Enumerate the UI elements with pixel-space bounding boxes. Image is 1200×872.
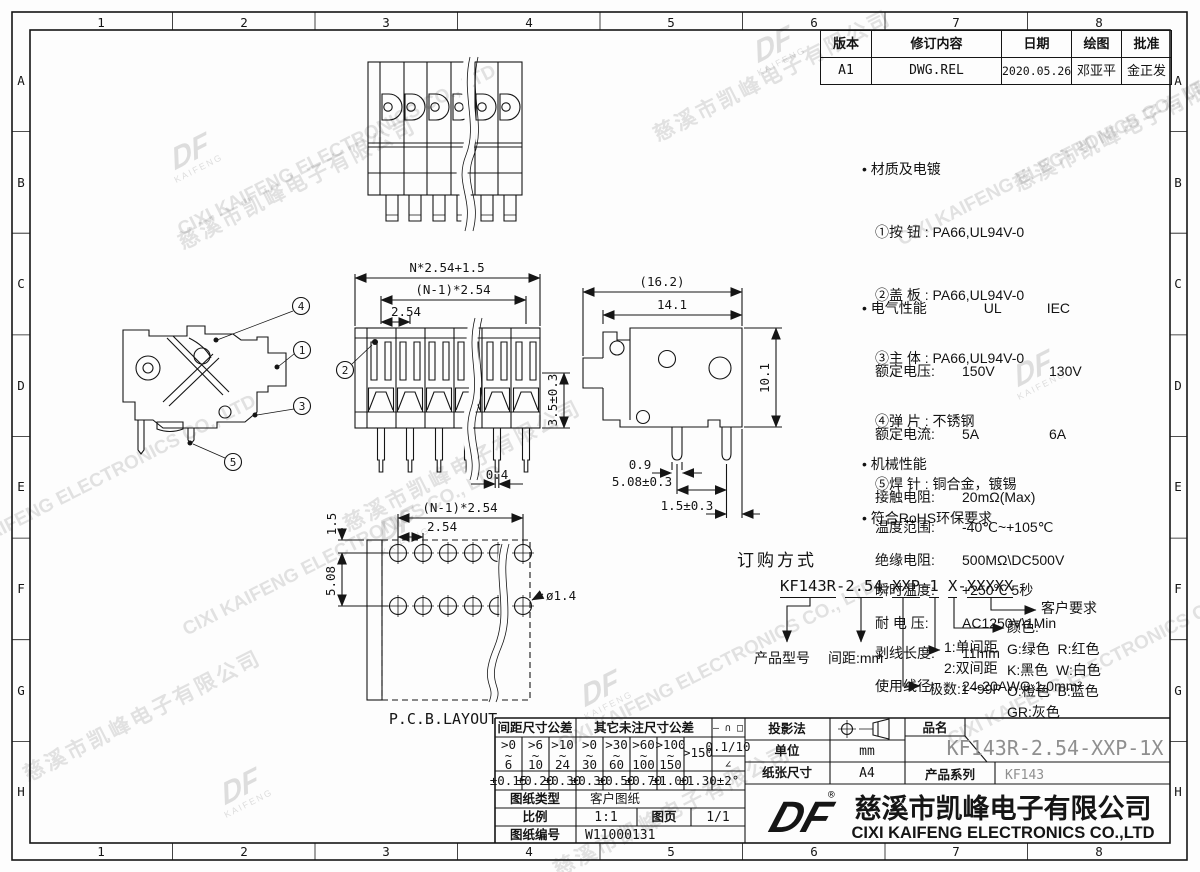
dim-pin-pitch: 5.08±0.3 (612, 474, 672, 489)
spec-rohs: • 符合RoHS环保要求 (862, 508, 1167, 529)
series-label: 产品系列 (925, 767, 975, 782)
rev-header: 日期 (1001, 31, 1071, 57)
svg-text:6: 6 (810, 844, 818, 859)
top-view-drawing (340, 55, 560, 250)
ordering-colors: O:橙色 B:蓝色 (1007, 681, 1099, 701)
svg-text:A: A (1174, 73, 1182, 88)
svg-text:D: D (1174, 378, 1182, 393)
solder-pins (672, 427, 731, 460)
sheet-type-label: 图纸类型 (510, 791, 561, 806)
ordering-double-label: 2:双间距 (944, 658, 998, 678)
rev-header: 版本 (821, 31, 871, 57)
svg-text:0.1/10: 0.1/10 (705, 739, 750, 754)
projection-label: 投影法 (768, 721, 806, 736)
rev-header: 修订内容 (871, 31, 1001, 57)
svg-text:1: 1 (97, 844, 105, 859)
svg-text:C: C (1174, 276, 1182, 291)
svg-text:8: 8 (1095, 844, 1103, 859)
svg-text:8: 8 (1095, 15, 1103, 30)
svg-text:30: 30 (582, 757, 597, 772)
dim-pitch: 2.54 (427, 519, 457, 534)
svg-text:H: H (1174, 784, 1182, 799)
callout-1: 1 (299, 344, 306, 357)
paper-value: A4 (859, 766, 875, 781)
callouts: 4 1 3 5 (188, 298, 311, 471)
svg-text:150: 150 (659, 757, 682, 772)
ordering-customer-label: 客户要求 (1041, 598, 1097, 618)
svg-text:3: 3 (382, 844, 390, 859)
svg-text:F: F (17, 581, 25, 596)
ordering-single-label: 1:单间距 (944, 637, 998, 657)
pcb-layout-label: P.C.B.LAYOUT (389, 710, 497, 728)
ordering-color-title: 颜色: (1007, 617, 1039, 637)
svg-text:1: 1 (97, 15, 105, 30)
dim-edge: 1.5±0.3 (661, 498, 714, 513)
dim-pitch: 2.54 (391, 304, 421, 319)
ordering-colors: K:黑色 W:白色 (1007, 660, 1101, 680)
page-label: 图页 (651, 810, 676, 824)
svg-text:5: 5 (667, 15, 675, 30)
paper-label: 纸张尺寸 (762, 765, 813, 780)
svg-text:100: 100 (632, 757, 655, 772)
part-name-value: KF143R-2.54-XXP-1X (947, 736, 1164, 760)
ordering-pitch-label: 间距:mm (828, 648, 883, 668)
callout-4: 4 (298, 300, 305, 313)
spring (163, 336, 229, 406)
page-value: 1/1 (706, 810, 729, 825)
svg-text:A: A (17, 73, 25, 88)
part-name-label: 品名 (922, 720, 947, 735)
callout-5: 5 (230, 456, 237, 469)
unit-value: mm (859, 744, 875, 759)
dim-pin-width: 0.4 (486, 467, 509, 482)
scale-label: 比例 (522, 809, 547, 824)
svg-text:2: 2 (240, 15, 248, 30)
registered-mark: ® (828, 788, 835, 801)
rev-header: 批准 (1121, 31, 1171, 57)
rev-date: 2020.05.26 (1001, 57, 1071, 84)
sheet-type-value: 客户图纸 (590, 791, 641, 806)
dim-hole-dia: ø1.4 (546, 588, 576, 603)
svg-text:6: 6 (505, 757, 513, 772)
svg-text:F: F (1174, 581, 1182, 596)
svg-text:24: 24 (555, 757, 570, 772)
ordering-poles-label: 极数:1~99P (929, 679, 1002, 699)
solder-pins (378, 428, 530, 472)
svg-text:E: E (17, 479, 25, 494)
ordering-model-label: 产品型号 (754, 648, 810, 668)
svg-text:4: 4 (525, 844, 533, 859)
svg-text:E: E (1174, 479, 1182, 494)
unit-label: 单位 (774, 743, 800, 758)
dim-row-pitch: 5.08 (323, 566, 338, 596)
svg-text:5: 5 (667, 844, 675, 859)
svg-text:4: 4 (525, 15, 533, 30)
rev-approver: 金正发 (1121, 57, 1171, 84)
drawing-sheet: CIXI KAIFENG ELECTRONICS CO., LTD 慈溪市凯峰电… (0, 0, 1200, 872)
rev-content: DWG.REL (871, 57, 1001, 84)
solder-pins (386, 195, 516, 221)
dim-body: 14.1 (657, 297, 687, 312)
title-block: 间距尺寸公差 其它未注尺寸公差 — ∩ □ >0>6>10>0>30>60>10… (495, 718, 1170, 843)
svg-text:±1.30: ±1.30 (679, 773, 717, 788)
side-view-drawing: (16.2) 14.1 10.1 0.9 5.08±0.3 1.5±0.3 (560, 270, 795, 540)
revision-table: 版本 修订内容 日期 绘图 批准 A1 DWG.REL 2020.05.26 邓… (820, 30, 1172, 85)
tol-symbols: — ∩ □ (713, 723, 743, 734)
svg-text:6: 6 (810, 15, 818, 30)
svg-text:±2°: ±2° (717, 773, 740, 788)
dimension-lines (355, 274, 570, 488)
rev-drawer: 邓亚平 (1071, 57, 1121, 84)
dim-pin-dia: 0.9 (629, 457, 652, 472)
svg-text:G: G (17, 683, 25, 698)
svg-text:2: 2 (240, 844, 248, 859)
dim-span: (N-1)*2.54 (415, 282, 490, 297)
dwg-no-label: 图纸编号 (510, 827, 560, 842)
svg-text:B: B (17, 175, 25, 190)
tol-values: ±0.15±0.20±0.30±0.30±0.50±0.70±1.00±1.30… (490, 773, 740, 788)
dim-span: (N-1)*2.54 (422, 500, 497, 515)
svg-text:B: B (1174, 175, 1182, 190)
projection-symbol (838, 719, 889, 739)
tol-pitch-header: 间距尺寸公差 (497, 720, 572, 735)
ordering-colors: G:绿色 R:红色 (1007, 639, 1100, 659)
tol-ranges: >0>6>10>0>30>60>100 ~~~~~~~ 610243060100… (501, 737, 751, 772)
company-name-cn: 慈溪市凯峰电子有限公司 (855, 793, 1152, 824)
svg-text:60: 60 (609, 757, 624, 772)
svg-text:∠: ∠ (725, 758, 732, 771)
dim-height: 10.1 (757, 363, 772, 393)
svg-text:7: 7 (952, 15, 960, 30)
dim-overall: N*2.54+1.5 (409, 260, 484, 275)
svg-text:10: 10 (528, 757, 543, 772)
dim-overall: (16.2) (639, 274, 684, 289)
company-name-en: CIXI KAIFENG ELECTRONICS CO.,LTD (851, 824, 1154, 842)
dwg-no-value: W11000131 (585, 828, 655, 843)
callout-3: 3 (299, 400, 306, 413)
tol-other-header: 其它未注尺寸公差 (594, 720, 694, 735)
pcb-layout-drawing: 1.5 5.08 (N-1)*2.54 2.54 ø1.4 P.C.B.LAYO… (300, 490, 570, 745)
svg-text:D: D (17, 378, 25, 393)
section-view-drawing: 4 1 3 5 (105, 280, 340, 495)
svg-text:G: G (1174, 683, 1182, 698)
rev-header: 绘图 (1071, 31, 1121, 57)
dim-pin-length: 3.5±0.3 (545, 374, 560, 427)
scale-value: 1:1 (594, 810, 617, 825)
svg-text:3: 3 (382, 15, 390, 30)
dim-edge: 1.5 (324, 513, 339, 536)
series-value: KF143 (1005, 768, 1044, 783)
rev-version: A1 (821, 57, 871, 84)
solder-pins (138, 420, 194, 454)
hole-crosshairs (387, 542, 534, 617)
svg-text:H: H (17, 784, 25, 799)
svg-text:C: C (17, 276, 25, 291)
svg-text:7: 7 (952, 844, 960, 859)
callout-2: 2 (342, 364, 349, 377)
